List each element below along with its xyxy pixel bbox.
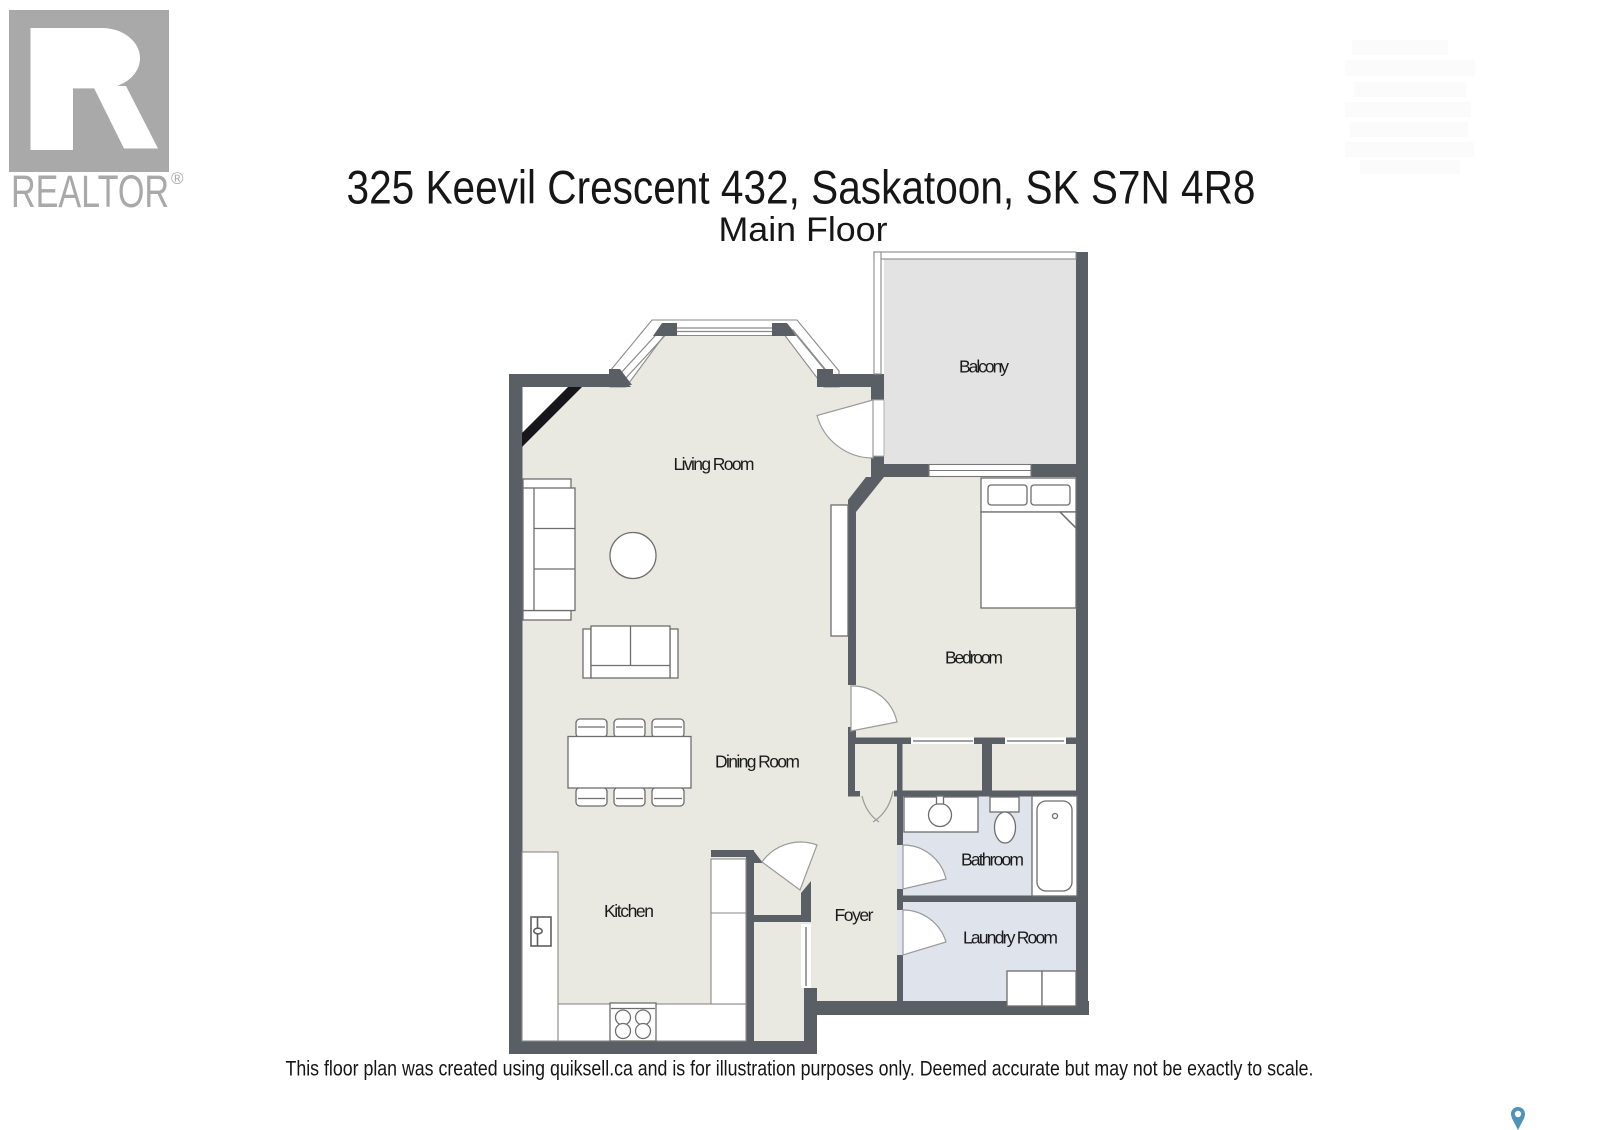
svg-text:325 Keevil Crescent 432, Saska: 325 Keevil Crescent 432, Saskatoon, SK S… (347, 161, 1256, 214)
svg-text:Foyer: Foyer (835, 905, 874, 925)
svg-text:Bedroom: Bedroom (945, 648, 1003, 668)
svg-text:This floor plan was created us: This floor plan was created using quikse… (286, 1057, 1314, 1081)
svg-text:Kitchen: Kitchen (604, 901, 654, 921)
svg-text:Balcony: Balcony (959, 357, 1009, 377)
svg-text:Main Floor: Main Floor (719, 211, 888, 249)
svg-text:Dining Room: Dining Room (715, 752, 800, 772)
svg-text:Laundry Room: Laundry Room (963, 928, 1058, 948)
svg-text:REALTOR: REALTOR (11, 166, 169, 217)
svg-text:®: ® (171, 169, 184, 188)
svg-text:Living Room: Living Room (674, 454, 755, 474)
svg-text:Bathroom: Bathroom (961, 850, 1024, 870)
